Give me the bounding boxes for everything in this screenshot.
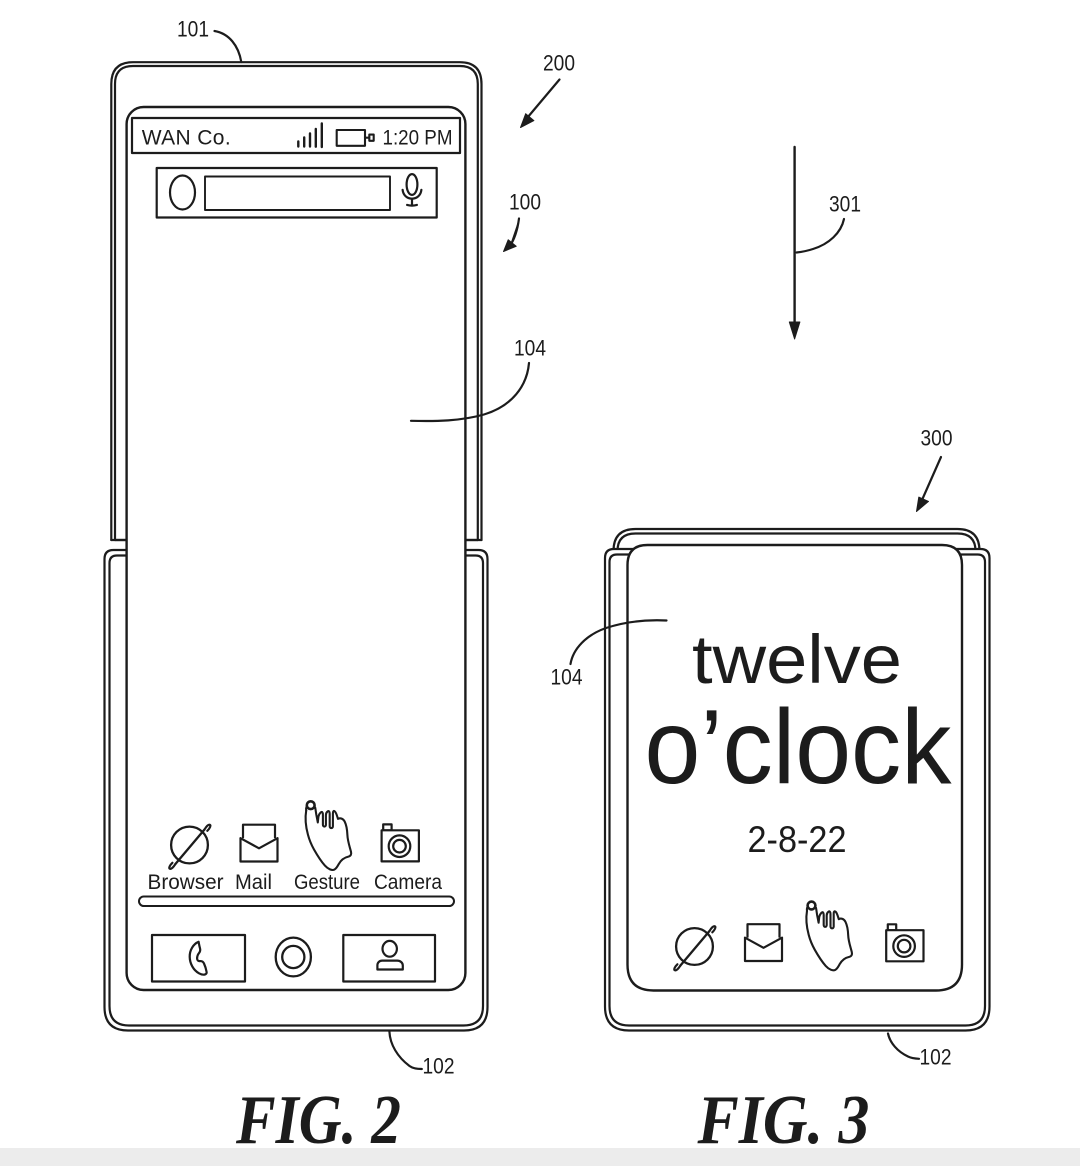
svg-text:102: 102	[423, 1054, 455, 1079]
svg-text:WAN Co.: WAN Co.	[142, 127, 231, 150]
svg-text:Mail: Mail	[235, 871, 272, 894]
svg-text:300: 300	[921, 426, 953, 451]
svg-text:1:20 PM: 1:20 PM	[383, 127, 453, 150]
svg-text:twelve: twelve	[692, 621, 902, 698]
svg-text:104: 104	[514, 336, 546, 361]
svg-text:102: 102	[920, 1045, 952, 1070]
svg-text:o’clock: o’clock	[645, 688, 953, 806]
svg-text:FIG. 3: FIG. 3	[697, 1082, 870, 1159]
svg-text:101: 101	[177, 17, 209, 42]
svg-text:2-8-22: 2-8-22	[748, 819, 847, 860]
svg-text:104: 104	[551, 665, 583, 690]
svg-text:Camera: Camera	[374, 871, 442, 894]
svg-text:Browser: Browser	[148, 871, 224, 894]
svg-text:301: 301	[829, 192, 861, 217]
svg-text:Gesture: Gesture	[294, 871, 360, 894]
svg-text:FIG. 2: FIG. 2	[235, 1082, 401, 1159]
svg-text:200: 200	[543, 51, 575, 76]
svg-text:100: 100	[509, 190, 541, 215]
